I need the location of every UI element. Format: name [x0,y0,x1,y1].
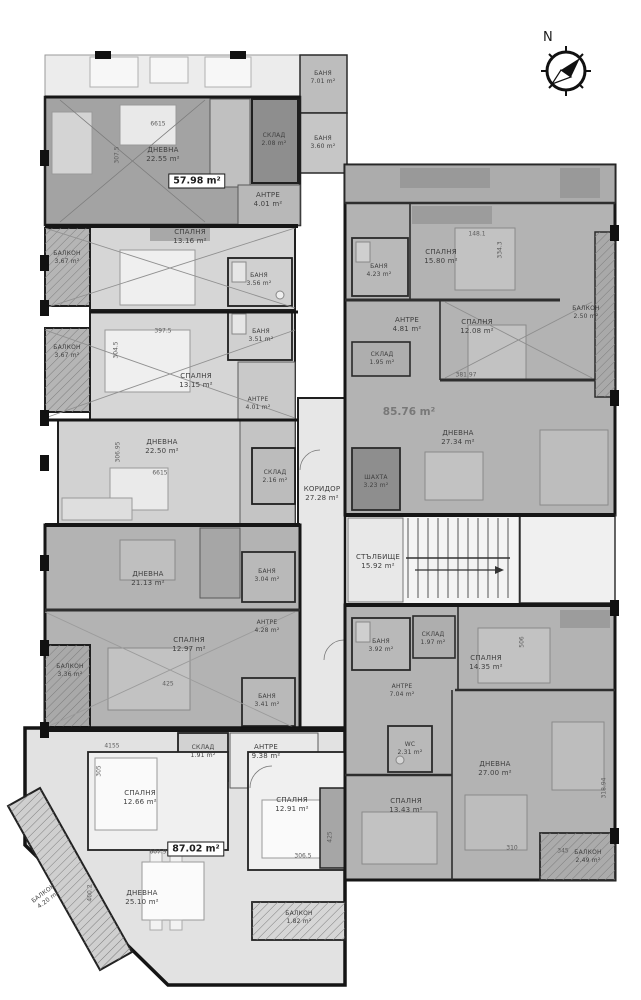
room-label: БАЛКОН3.67 m² [53,250,80,266]
room-label: БАНЯ3.92 m² [369,638,394,654]
room-label: ДНЕВНА25.10 m² [125,889,159,907]
room-label: СПАЛНЯ14.35 m² [469,654,503,672]
room-label: СПАЛНЯ15.80 m² [424,248,458,266]
room-label: АНТРЕ4.28 m² [255,619,280,635]
dim-label: 425 [162,681,173,688]
dim-label: 307.5 [114,146,121,163]
room-label: СПАЛНЯ12.66 m² [123,789,157,807]
dim-label: 6615 [152,470,167,477]
room-label: БАЛКОН1.82 m² [285,910,312,926]
room-label: СПАЛНЯ13.16 m² [173,228,207,246]
room-label: СКЛАД2.08 m² [262,132,287,148]
room-label: БАНЯ3.60 m² [311,135,336,151]
room-label: ШАХТА3.23 m² [364,474,389,490]
room-label: БАНЯ3.56 m² [247,272,272,288]
room-label: БАЛКОН2.49 m² [574,849,601,865]
room-label: СКЛАД2.16 m² [263,469,288,485]
dim-label: 381.97 [456,372,477,379]
room-label: ДНЕВНА22.55 m² [146,146,180,164]
dim-label: 345 [557,848,568,855]
dim-label: 506 [519,636,526,647]
room-label: СТЪЛБИЩЕ15.92 m² [356,553,400,571]
room-label: ДНЕВНА27.00 m² [478,760,512,778]
room-label: БАНЯ3.04 m² [255,568,280,584]
dim-label: 6615 [150,121,165,128]
room-label: СКЛАД1.97 m² [421,631,446,647]
room-label: ДНЕВНА21.13 m² [131,570,165,588]
room-label: БАНЯ4.23 m² [367,263,392,279]
compass-n-label: N [543,30,553,45]
dim-label: 318.94 [601,778,608,799]
dim-label: 4155 [104,743,119,750]
floor-plan-canvas: N 57.98 m² 85.76 m² 87.02 m² ДНЕВНА22.55… [0,0,641,1000]
room-label: БАНЯ7.01 m² [311,70,336,86]
dim-label: 304.5 [113,341,120,358]
dim-label: 400.2 [87,884,94,901]
room-label: АНТРЕ7.04 m² [390,683,415,699]
apartment-area-label: 87.02 m² [167,842,224,857]
room-label: СПАЛНЯ13.15 m² [179,372,213,390]
room-label: СКЛАД1.95 m² [370,351,395,367]
room-label: КОРИДОР27.28 m² [304,485,341,503]
room-label: БАНЯ3.41 m² [255,693,280,709]
room-label: ДНЕВНА22.50 m² [145,438,179,456]
dim-label: 306.95 [115,442,122,463]
dim-label: 334.3 [497,241,504,258]
room-label: БАЛКОН2.50 m² [572,305,599,321]
room-label: БАНЯ3.51 m² [249,328,274,344]
room-label: АНТРЕ9.38 m² [252,743,281,761]
dim-label: 310 [506,845,517,852]
room-label: СКЛАД1.91 m² [191,744,216,760]
compass-icon [541,46,591,96]
dim-label: 607.9 [149,849,166,856]
room-label: СПАЛНЯ13.43 m² [389,797,423,815]
dim-label: 397.5 [154,328,171,335]
room-label: АНТРЕ4.81 m² [393,316,422,334]
room-label: БАЛКОН3.36 m² [56,663,83,679]
room-label: СПАЛНЯ12.08 m² [460,318,494,336]
room-label: АНТРЕ4.01 m² [246,396,271,412]
room-label: WC2.31 m² [398,741,423,757]
dim-label: 306.5 [294,853,311,860]
room-label: СПАЛНЯ12.97 m² [172,636,206,654]
apartment-area-label: 85.76 m² [379,405,439,419]
room-label: ДНЕВНА27.34 m² [441,429,475,447]
dim-label: 148.1 [468,231,485,238]
apartment-area-label: 57.98 m² [168,174,225,189]
room-label: СПАЛНЯ12.91 m² [275,796,309,814]
dim-label: 305 [96,765,103,776]
dim-label: 425 [327,831,334,842]
room-label: АНТРЕ4.01 m² [254,191,283,209]
room-label: БАЛКОН3.67 m² [53,344,80,360]
